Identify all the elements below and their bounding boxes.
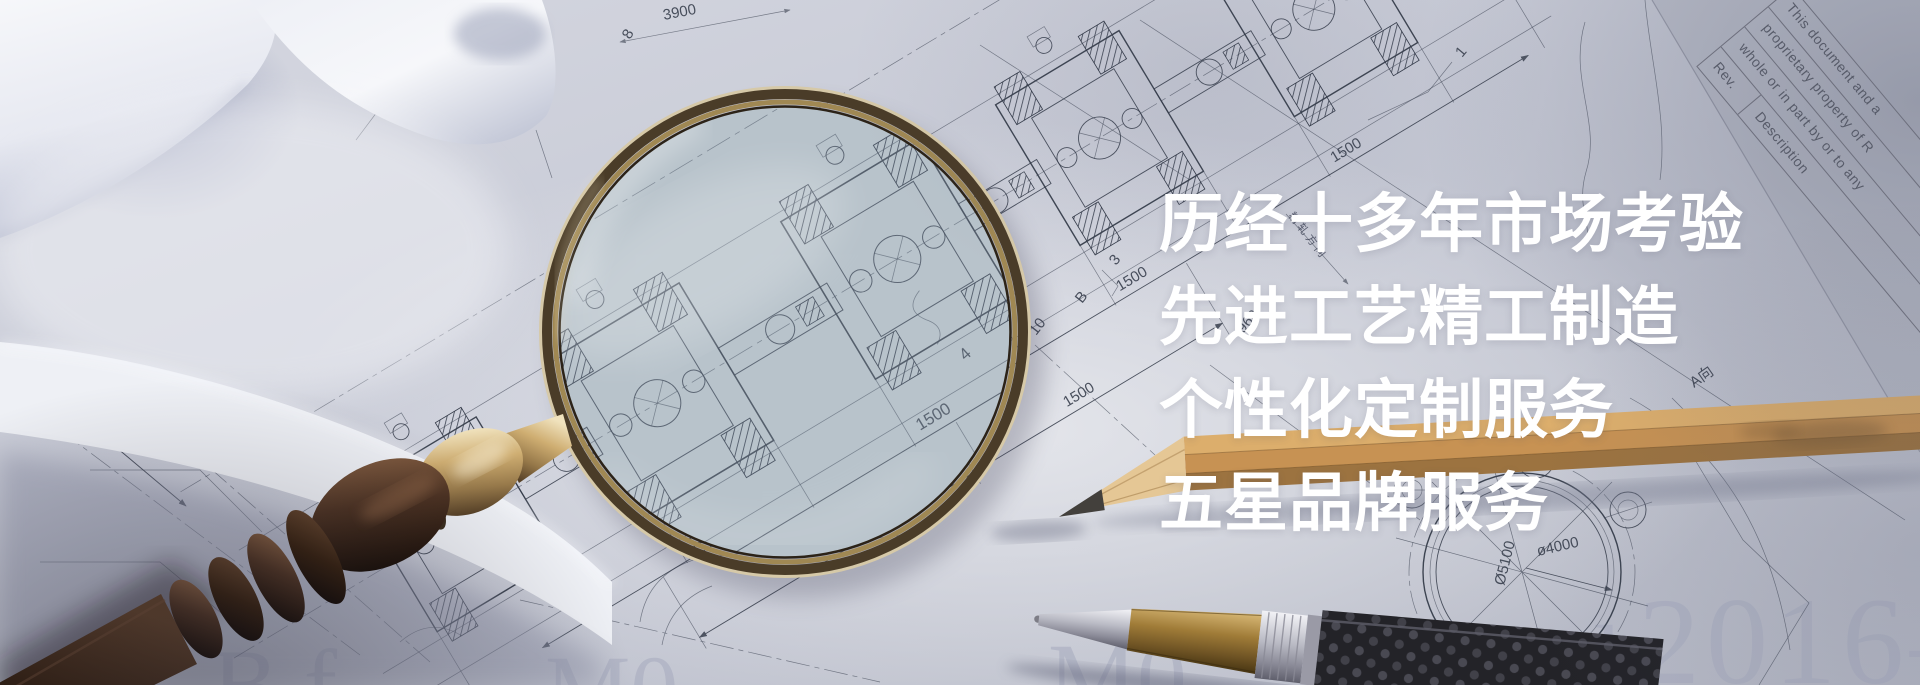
headline-line-1: 历经十多年市场考验	[1159, 178, 1744, 271]
headline-line-3: 个性化定制服务	[1159, 364, 1744, 457]
headline-line-4: 五星品牌服务	[1159, 457, 1744, 550]
headline-line-2: 先进工艺精工制造	[1159, 271, 1744, 364]
headline: 历经十多年市场考验 先进工艺精工制造 个性化定制服务 五星品牌服务	[1159, 178, 1744, 550]
hero-banner: B f M0 M0 od 2016— 1500 15	[0, 0, 1920, 685]
